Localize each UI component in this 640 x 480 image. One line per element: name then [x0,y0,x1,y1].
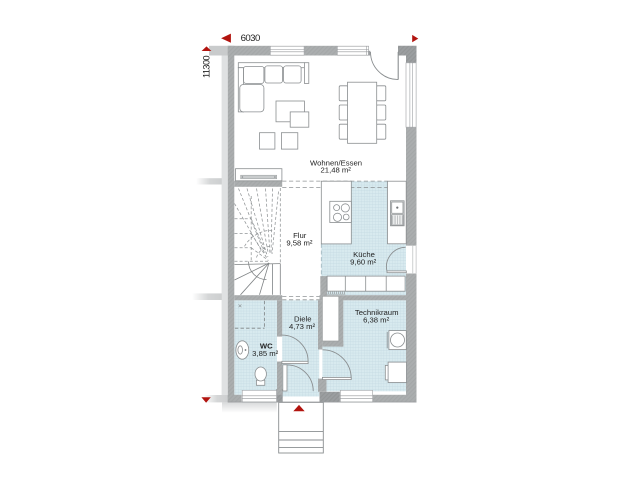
svg-text:4,73 m²: 4,73 m² [289,322,316,331]
svg-text:3,85 m²: 3,85 m² [252,349,279,358]
svg-text:21,48 m²: 21,48 m² [321,166,352,175]
svg-text:9,60 m²: 9,60 m² [350,257,377,266]
svg-text:9,58 m²: 9,58 m² [286,238,313,247]
svg-text:11300: 11300 [202,55,212,78]
svg-text:6,38 m²: 6,38 m² [363,316,390,325]
svg-text:6030: 6030 [241,33,260,44]
